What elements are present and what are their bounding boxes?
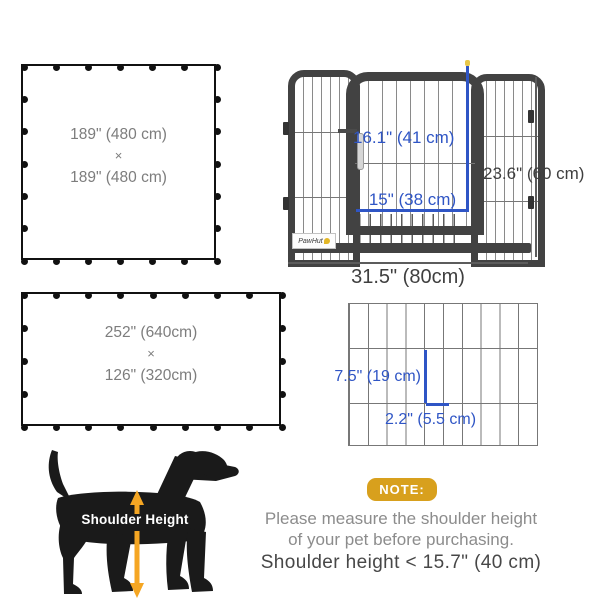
panel-connector-dot — [182, 424, 189, 431]
panel-connector-dot — [85, 292, 92, 299]
panel-width-line — [288, 262, 528, 264]
panel-connector-dot — [214, 161, 221, 168]
panel-connector-dot — [214, 96, 221, 103]
rect-config-outline: 252" (640cm) × 126" (320cm) — [21, 292, 281, 426]
panel-connector-dot — [117, 258, 124, 265]
dog-hind-leg-far — [59, 520, 90, 594]
square-config-outline: 189" (480 cm) × 189" (480 cm) — [21, 64, 216, 260]
panel-connector-dot — [181, 64, 188, 71]
panel-connector-dot — [246, 292, 253, 299]
rect-dimensions: 252" (640cm) × 126" (320cm) — [23, 324, 279, 385]
panel-connector-dot — [85, 424, 92, 431]
panel-connector-dot — [21, 258, 28, 265]
panel-connector-dot — [150, 424, 157, 431]
panel-connector-dot — [149, 64, 156, 71]
gap-height-label: 7.5" (19 cm) — [321, 368, 421, 386]
note-line-3: Shoulder height < 15.7" (40 cm) — [245, 552, 557, 574]
panel-connector-dot — [214, 64, 221, 71]
note-line-2: of your pet before purchasing. — [245, 530, 557, 550]
panel-width-label: 31.5" (80cm) — [288, 266, 528, 289]
panel-connector-dot — [21, 64, 28, 71]
dog-front-leg-b — [187, 528, 213, 592]
shoulder-height-label: Shoulder Height — [60, 512, 210, 527]
panel-connector-dot — [149, 258, 156, 265]
panel-connector-dot — [214, 128, 221, 135]
dog-tail — [49, 450, 72, 502]
panel-connector-dot — [150, 292, 157, 299]
panel-connector-dot — [21, 128, 28, 135]
hinge-tab — [283, 122, 289, 135]
panel-connector-dot — [21, 325, 28, 332]
panel-height-label: 23.6" (60 cm) — [483, 164, 584, 184]
panel-connector-dot — [182, 292, 189, 299]
dog-front-leg-a — [166, 524, 189, 590]
rect-width-label: 252" (640cm) — [105, 324, 198, 341]
note-badge: NOTE: — [367, 478, 437, 501]
panel-connector-dot — [53, 424, 60, 431]
paw-icon — [324, 238, 330, 244]
hinge-tab — [528, 110, 534, 123]
panel-connector-dot — [21, 358, 28, 365]
bar-spacing-label: 2.2" (5.5 cm) — [385, 411, 476, 429]
door-height-label: 16.1" (41 cm) — [353, 128, 454, 148]
panel-connector-dot — [21, 424, 28, 431]
panel-connector-dot — [214, 424, 221, 431]
panel-connector-dot — [85, 258, 92, 265]
panel-connector-dot — [279, 358, 286, 365]
panel-connector-dot — [279, 391, 286, 398]
brand-label: PawHut — [292, 233, 336, 249]
panel-connector-dot — [53, 292, 60, 299]
panel-connector-dot — [53, 258, 60, 265]
dog-hind-leg-near — [107, 532, 133, 592]
panel-connector-dot — [279, 292, 286, 299]
panel-connector-dot — [214, 292, 221, 299]
hinge-tab — [283, 197, 289, 210]
panel-connector-dot — [53, 64, 60, 71]
playpen-infographic: 189" (480 cm) × 189" (480 cm) 252" (640c… — [0, 0, 600, 600]
square-dimensions: 189" (480 cm) × 189" (480 cm) — [23, 126, 214, 187]
hinge-tab — [528, 196, 534, 209]
square-width-label: 189" (480 cm) — [70, 126, 167, 143]
rect-height-label: 126" (320cm) — [105, 367, 198, 384]
square-height-label: 189" (480 cm) — [70, 169, 167, 186]
panel-connector-dot — [214, 225, 221, 232]
panel-connector-dot — [85, 64, 92, 71]
panel-connector-dot — [214, 258, 221, 265]
panel-connector-dot — [117, 424, 124, 431]
panel-connector-dot — [21, 225, 28, 232]
panel-connector-dot — [21, 96, 28, 103]
panel-connector-dot — [214, 193, 221, 200]
panel-connector-dot — [279, 424, 286, 431]
panel-connector-dot — [117, 292, 124, 299]
bar-spacing-line — [426, 403, 449, 406]
panel-connector-dot — [21, 292, 28, 299]
multiply-sign: × — [23, 347, 279, 362]
multiply-sign: × — [23, 149, 214, 164]
panel-connector-dot — [181, 258, 188, 265]
brand-name: PawHut — [298, 238, 323, 245]
panel-connector-dot — [21, 391, 28, 398]
panel-connector-dot — [117, 64, 124, 71]
panel-connector-dot — [21, 161, 28, 168]
door-width-label: 15" (38 cm) — [356, 190, 469, 210]
gap-height-line — [424, 350, 427, 403]
note-line-1: Please measure the shoulder height — [245, 509, 557, 529]
panel-connector-dot — [279, 325, 286, 332]
panel-connector-dot — [21, 193, 28, 200]
panel-connector-dot — [246, 424, 253, 431]
